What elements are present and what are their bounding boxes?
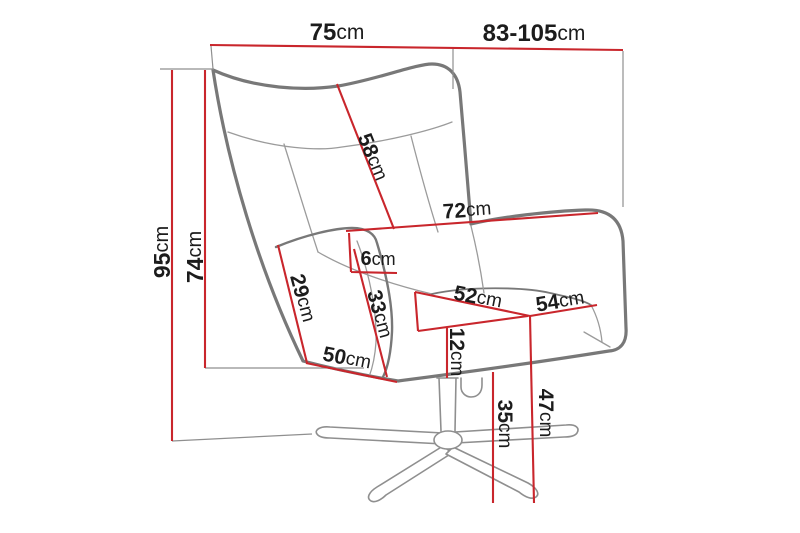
dim-label-75: 75cm	[310, 19, 365, 46]
dim-label-12: 12cm	[446, 328, 469, 377]
base-leg-right	[455, 425, 578, 443]
ext-floor-left	[172, 434, 312, 441]
dim-label-83-105: 83-105cm	[483, 20, 586, 47]
chair-silhouette	[213, 64, 626, 381]
dim-label-74: 74cm	[182, 231, 208, 283]
gas-lift-lever	[461, 378, 482, 397]
base-leg-front-right	[446, 447, 538, 498]
diagram-canvas: 75cm 83-105cm 95cm 74cm 58cm 72cm 29cm 6…	[0, 0, 800, 533]
base-column	[437, 378, 458, 431]
ext-top-corner	[211, 46, 213, 69]
base-leg-front-left	[369, 446, 452, 502]
dim-label-95: 95cm	[149, 226, 175, 278]
dim-label-72: 72cm	[442, 197, 492, 223]
base-hub	[434, 431, 462, 449]
base-leg-left	[316, 427, 443, 444]
dim-line-top	[210, 45, 623, 50]
dim-label-6: 6cm	[360, 248, 395, 270]
dim-label-47: 47cm	[535, 389, 558, 438]
armchair-dimension-diagram: 75cm 83-105cm 95cm 74cm 58cm 72cm 29cm 6…	[0, 0, 800, 533]
dim-label-35: 35cm	[494, 400, 517, 449]
